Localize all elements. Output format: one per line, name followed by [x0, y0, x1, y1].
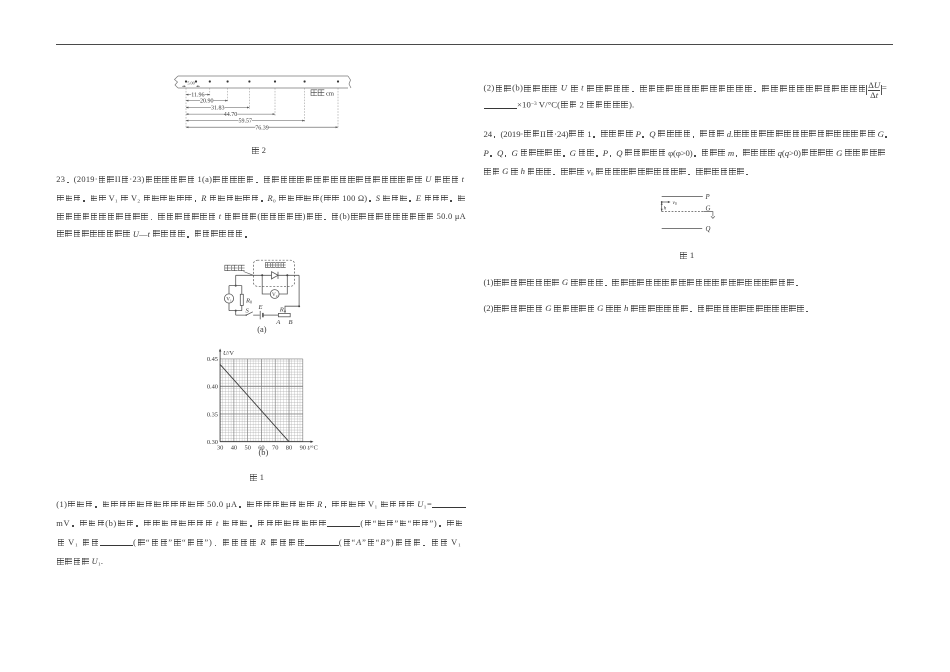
- svg-text:t/°C: t/°C: [308, 445, 318, 452]
- svg-text:S: S: [246, 307, 250, 314]
- svg-text:50: 50: [245, 445, 251, 452]
- svg-text:h: h: [664, 206, 667, 212]
- svg-text:76.39: 76.39: [255, 125, 269, 131]
- svg-text:70: 70: [272, 445, 278, 452]
- svg-text:0.45: 0.45: [207, 356, 218, 363]
- svg-text:E: E: [258, 304, 263, 311]
- svg-text:B: B: [289, 319, 293, 326]
- svg-text:80: 80: [286, 445, 292, 452]
- svg-text:44.70: 44.70: [224, 112, 238, 118]
- svg-text:v0: v0: [673, 200, 677, 206]
- svg-text:V1: V1: [226, 297, 232, 303]
- svg-text:V2: V2: [272, 292, 278, 298]
- svg-text:R: R: [279, 307, 284, 314]
- svg-text:0.40: 0.40: [207, 384, 218, 391]
- svg-text:40: 40: [231, 445, 237, 452]
- svg-text:5.00: 5.00: [187, 80, 194, 85]
- svg-text:Q: Q: [706, 226, 711, 233]
- svg-text:31.83: 31.83: [211, 106, 225, 112]
- svg-text:A: A: [275, 319, 281, 326]
- svg-text:P: P: [705, 194, 710, 201]
- svg-text:R0: R0: [245, 298, 252, 305]
- svg-text:0.35: 0.35: [207, 411, 218, 418]
- svg-text:U/V: U/V: [223, 350, 234, 357]
- svg-text:20.90: 20.90: [200, 99, 214, 105]
- svg-text:cm: cm: [326, 91, 334, 98]
- svg-text:59.57: 59.57: [239, 119, 253, 125]
- svg-text:30: 30: [217, 445, 223, 452]
- svg-text:90: 90: [300, 445, 306, 452]
